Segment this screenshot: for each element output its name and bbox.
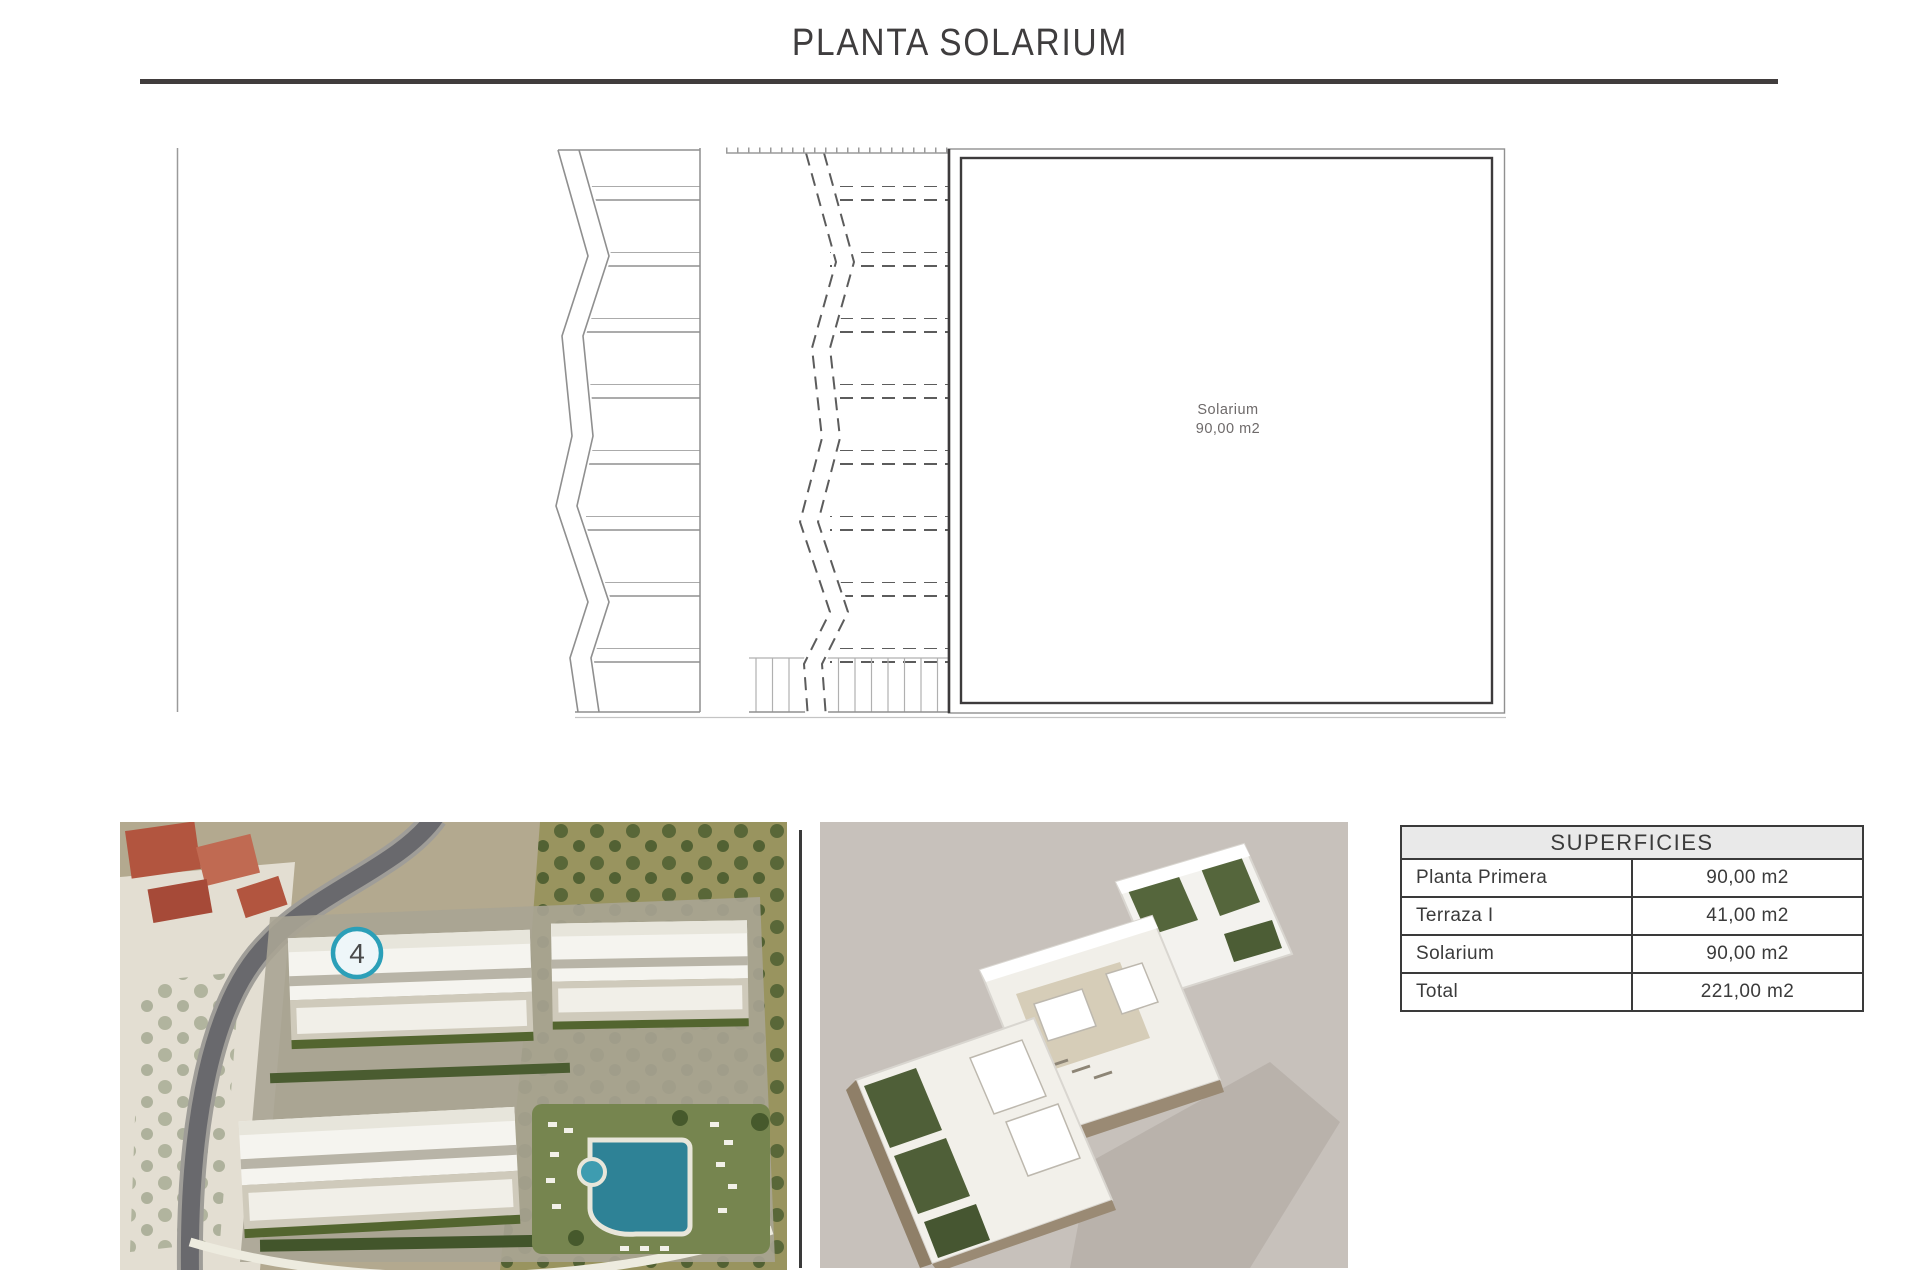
- image-separator: [799, 830, 802, 1268]
- row-value: 90,00 m2: [1632, 859, 1863, 897]
- table-header: SUPERFICIES: [1401, 826, 1863, 859]
- title-rule: [140, 79, 1778, 84]
- superficies-table: SUPERFICIES Planta Primera 90,00 m2 Terr…: [1400, 825, 1864, 1012]
- row-value: 90,00 m2: [1632, 935, 1863, 973]
- table-row: Total 221,00 m2: [1401, 973, 1863, 1011]
- unit-marker: 4: [333, 929, 381, 977]
- building-block-b: [551, 920, 749, 1029]
- stair-strip: [749, 658, 949, 712]
- row-value: 41,00 m2: [1632, 897, 1863, 935]
- row-label: Solarium: [1401, 935, 1632, 973]
- pool-area: [532, 1104, 770, 1254]
- table-row: Terraza I 41,00 m2: [1401, 897, 1863, 935]
- building-block-c: [239, 1107, 521, 1238]
- isometric-render: [820, 822, 1348, 1268]
- row-label: Total: [1401, 973, 1632, 1011]
- solarium-floor-plan: Solarium 90,00 m2: [140, 140, 1540, 740]
- plan-room-name: Solarium: [1197, 402, 1258, 418]
- page-title-wrap: PLANTA SOLARIUM: [0, 22, 1920, 65]
- page-title: PLANTA SOLARIUM: [792, 22, 1128, 65]
- row-label: Planta Primera: [1401, 859, 1632, 897]
- unit-marker-number: 4: [349, 938, 365, 969]
- table-row: Planta Primera 90,00 m2: [1401, 859, 1863, 897]
- plan-room-area: 90,00 m2: [1196, 421, 1260, 437]
- plan-sheet: PLANTA SOLARIUM: [0, 0, 1920, 1280]
- aerial-photo: 4: [120, 822, 787, 1270]
- building-block-a: [288, 930, 534, 1049]
- table-row: Solarium 90,00 m2: [1401, 935, 1863, 973]
- row-value: 221,00 m2: [1632, 973, 1863, 1011]
- row-label: Terraza I: [1401, 897, 1632, 935]
